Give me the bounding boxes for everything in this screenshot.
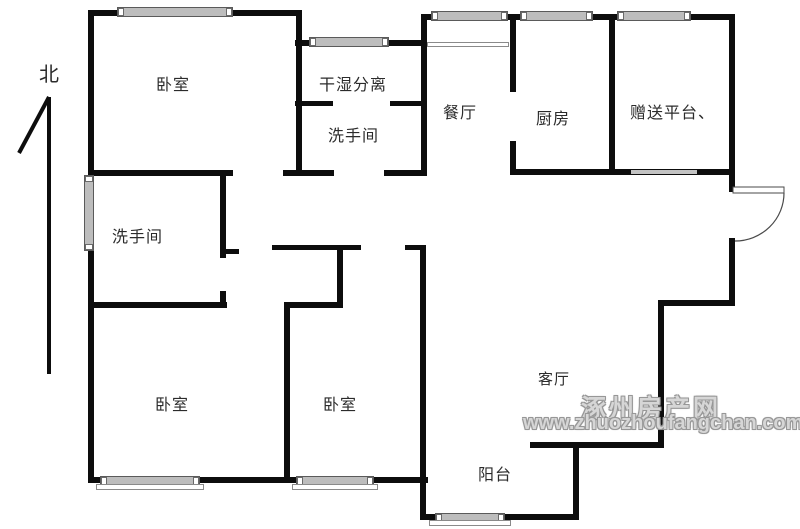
bay-sill-bedroom-sw — [96, 484, 204, 490]
wall-bedroom-sw-door-stub — [220, 291, 226, 304]
wall-bedroom-nw-right — [296, 10, 302, 176]
wall-west-exterior-upper — [88, 10, 94, 176]
window-drywet — [309, 37, 389, 47]
room-label-gift-platform: 赠送平台、 — [630, 105, 715, 123]
wall-bedroom-divider — [284, 302, 290, 483]
wall-bath-west-right — [220, 170, 226, 258]
north-arrow-icon — [19, 97, 49, 374]
room-label-bedroom-southwest: 卧室 — [155, 397, 189, 415]
wall-bedroom-s-notch-top — [284, 302, 343, 308]
wall-east-exterior-upper — [729, 14, 735, 192]
wall-living-balcony — [530, 442, 664, 448]
wall-bath-north-bottom-right — [384, 170, 426, 176]
room-label-bedroom-northwest: 卧室 — [156, 77, 190, 95]
north-label: 北 — [39, 64, 59, 86]
wall-kitchen-platform-bottom — [510, 169, 735, 175]
wall-entry-step — [658, 300, 735, 306]
watermark-site-url: www.zhuozhoufangchan.com — [523, 412, 800, 435]
wall-dining-kitchen-lower — [510, 141, 516, 175]
bay-sill-balcony — [429, 520, 511, 526]
wall-balcony-right — [573, 442, 579, 520]
room-label-bathroom-north: 洗手间 — [328, 128, 379, 146]
window-kitchen — [520, 11, 593, 21]
entry-door-icon — [733, 187, 784, 241]
wall-kitchen-right — [609, 14, 615, 175]
wall-corridor-south — [272, 245, 361, 250]
wall-bedroom-nw-bottom — [88, 170, 233, 176]
room-label-living-room: 客厅 — [538, 372, 570, 389]
window-bath-west — [84, 175, 94, 251]
plan-symbols — [0, 0, 800, 529]
room-label-bedroom-south: 卧室 — [323, 397, 357, 415]
bay-sill-bedroom-s — [292, 484, 378, 490]
room-label-kitchen: 厨房 — [536, 111, 570, 129]
wall-dining-kitchen-upper — [510, 14, 516, 92]
wall-bath-north-bottom-left — [283, 170, 334, 176]
room-label-bathroom-west: 洗手间 — [112, 229, 163, 247]
room-label-balcony: 阳台 — [478, 467, 512, 485]
window-platform-south — [631, 170, 697, 174]
wall-bedroom-s-right — [420, 245, 426, 520]
wall-bedroom-s-notch-side — [337, 245, 343, 307]
window-platform — [617, 11, 691, 21]
floor-plan: { "compass": { "label": "北" }, "rooms": … — [0, 0, 800, 529]
window-dining — [431, 11, 508, 21]
wall-bedroom-sw-top — [88, 302, 227, 308]
room-label-dry-wet-separation: 干湿分离 — [319, 77, 387, 95]
wall-hall-left — [421, 14, 427, 176]
wall-west-exterior-lower — [88, 250, 94, 483]
bay-sill-dining — [427, 42, 509, 47]
window-bedroom-nw — [117, 7, 233, 17]
room-label-dining-room: 餐厅 — [443, 105, 477, 123]
wall-east-exterior-mid — [729, 238, 735, 306]
